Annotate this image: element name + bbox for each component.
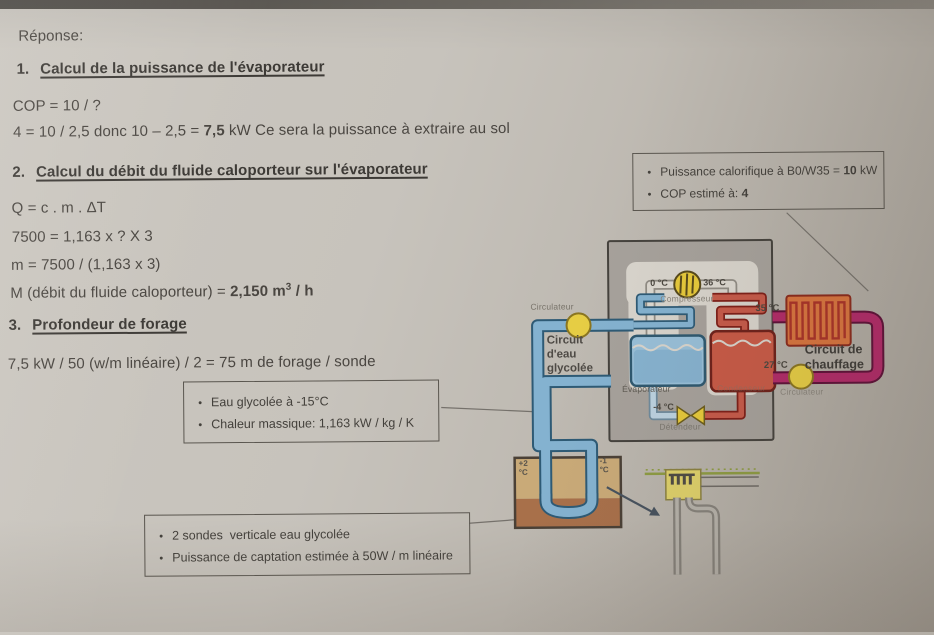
glycol-circuit-label-line2: d'eau	[547, 347, 593, 361]
note-line: •Eau glycolée à -15°C	[198, 393, 438, 411]
response-label: Réponse:	[18, 27, 83, 45]
bullet-icon: •	[198, 395, 202, 412]
compressor-outlet-temp: 36 °C	[703, 277, 726, 287]
glycol-circuit-label-line1: Circuit	[547, 333, 593, 347]
flow-result-number: 2,150 m	[230, 283, 286, 300]
note-line: •COP estimé à: 4	[647, 184, 883, 202]
connector-power-box-line	[787, 212, 869, 292]
heating-circuit-label: Circuit de chauffage	[805, 342, 864, 373]
manifold-fitting	[671, 476, 674, 485]
heating-power-value: 10	[843, 163, 856, 177]
evaporator-liquid	[634, 349, 702, 383]
heating-power-note: Puissance calorifique à B0/W35 = 10 kW	[660, 163, 877, 179]
glycol-note-box: •Eau glycolée à -15°C •Chaleur massique:…	[183, 379, 439, 443]
heating-circuit-label-line2: chauffage	[805, 357, 864, 373]
bullet-icon: •	[159, 529, 163, 546]
ground-temp-left: +2 °C	[519, 460, 528, 478]
section-1-title: Calcul de la puissance de l'évaporateur	[40, 58, 324, 77]
bullet-icon: •	[198, 417, 202, 434]
evaporator-tank	[631, 335, 705, 386]
bullet-icon: •	[159, 550, 163, 567]
sondes-count-note: 2 sondes verticale eau glycolée	[172, 527, 350, 542]
heating-supply-temp: 35 °C	[755, 303, 779, 314]
q-formula: Q = c . m . ΔT	[12, 199, 106, 217]
expansion-valve-label: Détendeur	[659, 421, 701, 431]
cop-note-value: 4	[741, 186, 748, 200]
power-note-box: •Puissance calorifique à B0/W35 = 10 kW …	[632, 151, 884, 211]
grass-line	[645, 473, 760, 474]
capture-power-note: Puissance de captation estimée à 50W / m…	[172, 548, 453, 564]
note-line: •Chaleur massique: 1,163 kW / kg / K	[198, 415, 438, 433]
connector-glycol-box-line	[441, 407, 535, 413]
glycol-temp-note: Eau glycolée à -15°C	[211, 394, 329, 409]
compressor-inlet-temp: 0 °C	[650, 278, 668, 288]
note-line: •Puissance calorifique à B0/W35 = 10 kW	[647, 163, 883, 181]
borehole-detail	[645, 469, 761, 575]
specific-heat-note: Chaleur massique: 1,163 kW / kg / K	[211, 415, 414, 431]
note-line: •Puissance de captation estimée à 50W / …	[159, 548, 469, 567]
flow-result-value: 2,150 m3 / h	[230, 282, 314, 300]
power-result-post: kW Ce sera la puissance à extraire au so…	[225, 120, 510, 139]
radiator	[786, 295, 850, 346]
compressor-label: Compresseur	[660, 293, 713, 303]
flow-result-line: M (débit du fluide caloporteur) = 2,150 …	[10, 281, 313, 301]
bullet-icon: •	[647, 186, 651, 203]
photo-top-edge	[0, 0, 934, 9]
section-2-heading: 2.Calcul du débit du fluide caloporteur …	[12, 161, 427, 181]
manifold-fitting	[689, 476, 692, 485]
flow-result-pre: M (débit du fluide caloporteur) =	[10, 283, 230, 302]
sonde-left-core	[677, 498, 678, 575]
circulator-left-label: Circulateur	[530, 301, 573, 311]
heating-circuit-label-line1: Circuit de	[805, 342, 864, 358]
depth-result-line: 7,5 kW / 50 (w/m linéaire) / 2 = 75 m de…	[8, 353, 376, 373]
section-3-heading: 3.Profondeur de forage	[8, 315, 186, 333]
section-2-title: Calcul du débit du fluide caloporteur su…	[36, 161, 428, 181]
section-3-title: Profondeur de forage	[32, 315, 187, 333]
ground-temp-right: -1 °C	[600, 457, 609, 475]
evaporator-label: Évaporateur	[622, 384, 671, 394]
heating-power-pre: Puissance calorifique à B0/W35 =	[660, 163, 843, 178]
section-1-number: 1.	[16, 61, 29, 78]
section-2-number: 2.	[12, 164, 25, 181]
glycol-circuit-label: Circuit d'eau glycolée	[547, 333, 593, 375]
expansion-valve-temp: -4 °C	[653, 402, 674, 412]
worksheet-page: Réponse: 1.Calcul de la puissance de l'é…	[0, 0, 934, 635]
manifold-fitting	[677, 476, 680, 485]
manifold-fitting	[683, 476, 686, 485]
cop-note: COP estimé à: 4	[660, 186, 748, 201]
section-3-number: 3.	[8, 317, 21, 334]
flow-result-unit: / h	[291, 282, 313, 299]
heating-power-unit: kW	[857, 163, 878, 177]
heating-return-temp: 27 °C	[764, 360, 788, 371]
bullet-icon: •	[647, 165, 651, 182]
section-1-heading: 1.Calcul de la puissance de l'évaporateu…	[16, 58, 324, 77]
power-result-value: 7,5	[204, 122, 225, 139]
condenser-label: Condenseur	[717, 383, 765, 393]
power-result-pre: 4 = 10 / 2,5 donc 10 – 2,5 =	[13, 122, 204, 140]
glycol-circuit-label-line3: glycolée	[547, 361, 593, 375]
note-line: •2 sondes verticale eau glycolée	[159, 526, 469, 545]
cop-note-pre: COP estimé à:	[660, 186, 741, 201]
cop-equation: COP = 10 / ?	[13, 97, 101, 115]
grass-tufts	[646, 469, 758, 470]
ground-temp-left-unit: °C	[519, 469, 528, 478]
ground-temp-right-unit: °C	[600, 466, 609, 475]
flow-equation-2: m = 7500 / (1,163 x 3)	[11, 256, 161, 274]
circulator-right-label: Circulateur	[780, 386, 823, 396]
flow-equation-1: 7500 = 1,163 x ? X 3	[12, 228, 153, 246]
sondes-note-box: •2 sondes verticale eau glycolée •Puissa…	[144, 512, 470, 577]
